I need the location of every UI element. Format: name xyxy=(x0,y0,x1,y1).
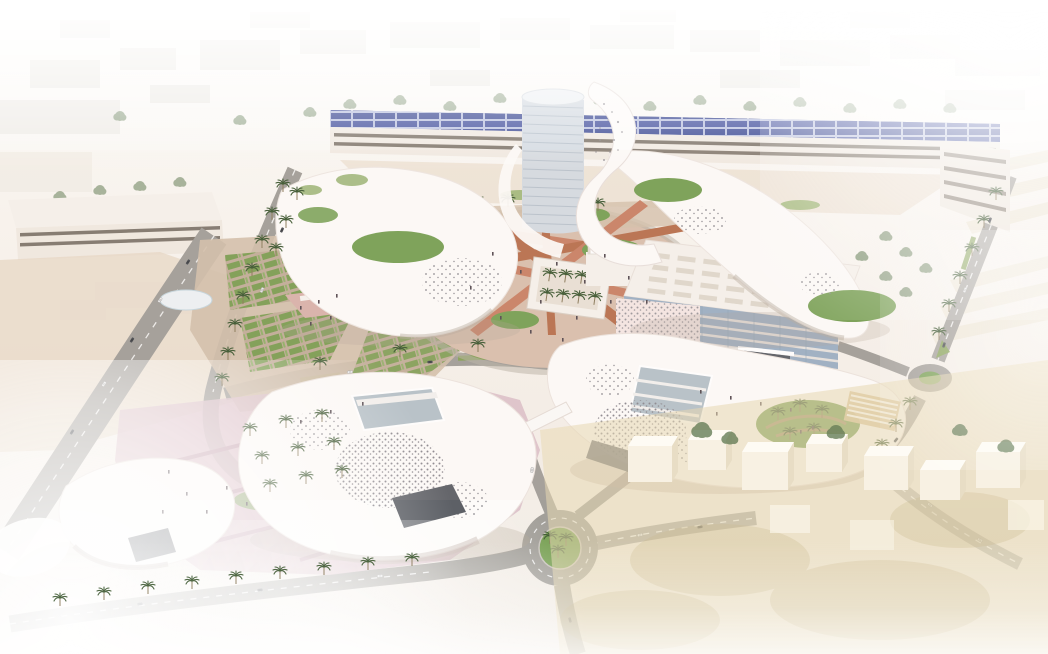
fog-bottom xyxy=(0,540,1048,654)
fog-mid-right xyxy=(880,230,1048,470)
scene-root xyxy=(0,0,1048,654)
top-white-strip xyxy=(0,0,1048,10)
rendering-image xyxy=(0,0,1048,654)
